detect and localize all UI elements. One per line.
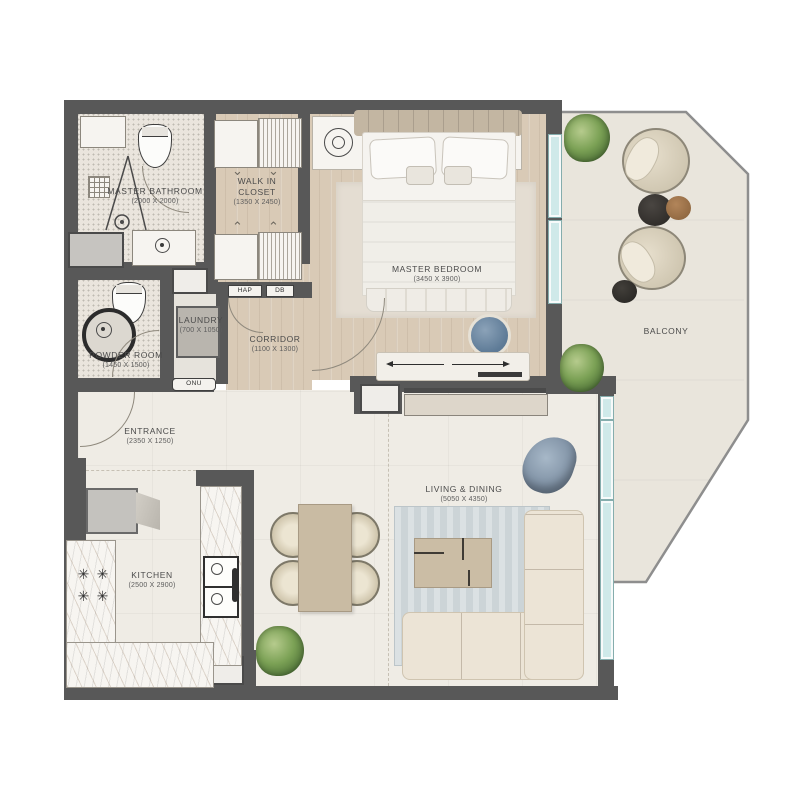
wardrobe-hanging xyxy=(258,118,302,168)
dining-table xyxy=(298,504,352,612)
onu-tag: ONU xyxy=(172,378,216,391)
kitchen-zone-line xyxy=(86,470,196,471)
sink-drain xyxy=(211,593,223,605)
balcony-door-glass xyxy=(600,396,614,420)
console-soundbar xyxy=(478,372,522,377)
bed-cushion xyxy=(406,166,434,185)
wall xyxy=(64,686,618,700)
coffee-table xyxy=(414,538,492,588)
hob-burner-icon: ✳ xyxy=(93,564,112,586)
floor-plan: ⌄ ⌄ ⌃ ⌃ ✳ ✳ ✳ ✳ xyxy=(0,0,800,800)
coffee-table-detail xyxy=(468,570,470,586)
hob-burners: ✳ ✳ ✳ ✳ xyxy=(74,564,112,608)
db-tag: DB xyxy=(266,285,294,297)
fridge xyxy=(86,488,138,534)
fcu-unit xyxy=(404,394,548,416)
floor-joint-line xyxy=(388,394,389,686)
powder-basin-drain xyxy=(101,327,105,331)
nightstand-lamp-inner xyxy=(332,136,345,149)
duct-shaft xyxy=(360,384,400,413)
coffee-table-detail xyxy=(462,538,464,560)
closet-chevron-icon: ⌃ xyxy=(268,222,279,232)
console-arrow-icon xyxy=(388,364,444,365)
curtain-pelmet xyxy=(404,388,546,393)
bed-duvet xyxy=(362,200,516,296)
bathroom-counter xyxy=(80,116,126,148)
bedroom-window xyxy=(548,134,562,218)
hob-burner-icon: ✳ xyxy=(93,586,112,608)
sofa-chaise xyxy=(524,510,584,680)
hob-burner-icon: ✳ xyxy=(74,586,93,608)
bedroom-window xyxy=(548,220,562,304)
wardrobe-hanging xyxy=(258,232,302,280)
vanity-tap xyxy=(160,243,164,247)
living-window xyxy=(600,500,614,660)
wardrobe xyxy=(214,234,258,280)
wardrobe xyxy=(214,120,258,168)
washing-machine xyxy=(176,306,220,358)
sink-drain xyxy=(211,563,223,575)
duct-shaft xyxy=(172,268,208,294)
kitchen-counter xyxy=(66,642,214,688)
balcony-side-table xyxy=(612,280,637,303)
closet-chevron-icon: ⌄ xyxy=(268,166,279,176)
wall xyxy=(240,486,254,664)
bed-foot-tufts xyxy=(366,288,512,312)
coffee-table-detail xyxy=(414,552,444,554)
wall xyxy=(196,470,254,486)
hob-burner-icon: ✳ xyxy=(74,564,93,586)
duct-shaft xyxy=(68,232,124,268)
bedroom-pouf xyxy=(468,314,511,357)
hap-tag: HAP xyxy=(228,285,262,297)
wall xyxy=(64,458,86,542)
console-arrow-icon xyxy=(452,364,508,365)
living-window xyxy=(600,420,614,500)
balcony-side-table xyxy=(666,196,691,220)
bed-cushion xyxy=(444,166,472,185)
sink-faucet xyxy=(232,568,238,602)
closet-chevron-icon: ⌄ xyxy=(232,166,243,176)
wall xyxy=(160,292,174,390)
shower xyxy=(96,150,156,236)
closet-chevron-icon: ⌃ xyxy=(232,222,243,232)
